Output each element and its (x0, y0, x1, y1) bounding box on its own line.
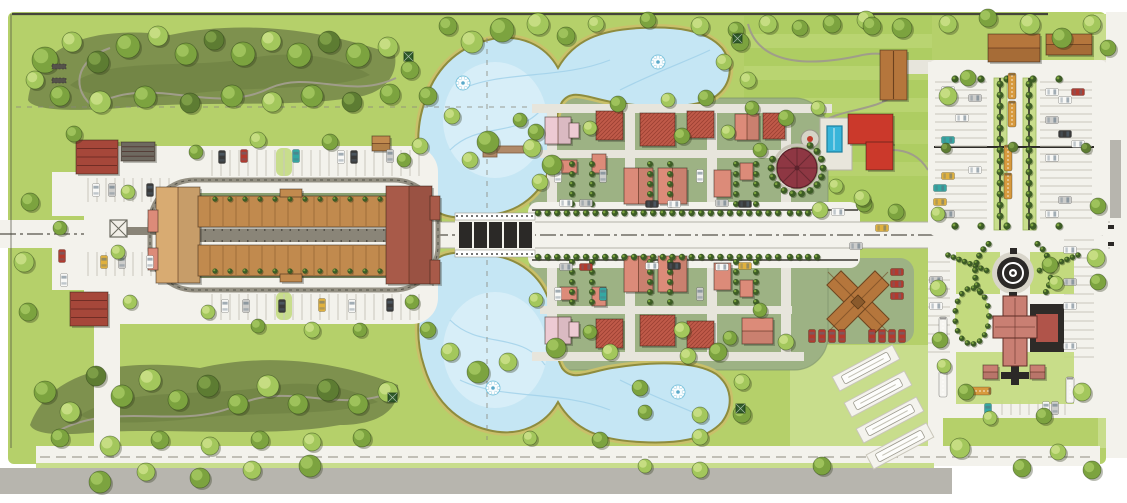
street-tree-highlight (348, 269, 350, 271)
street-tree-highlight (574, 211, 577, 214)
street-tree-highlight (815, 149, 818, 152)
street-tree-highlight (998, 104, 1001, 107)
car-windshield (985, 406, 990, 409)
street-tree-highlight (728, 255, 731, 258)
street-tree-canopy (554, 210, 560, 216)
street-tree-highlight (1027, 203, 1030, 206)
car-windshield (879, 332, 884, 335)
street-tree-canopy (769, 173, 776, 180)
street-tree-canopy (733, 191, 739, 197)
street-tree-canopy (272, 268, 277, 273)
street-tree-canopy (753, 191, 759, 197)
street-tree-highlight (668, 270, 670, 272)
street-tree-canopy (775, 254, 781, 260)
street-tree-highlight (815, 182, 818, 185)
street-tree-canopy (679, 254, 685, 260)
tree-highlight (354, 324, 362, 332)
street-tree-highlight (689, 255, 692, 258)
village-pink-n-annex-roof (569, 123, 579, 138)
fountain-droplet (489, 382, 492, 385)
car-rear-window (717, 264, 719, 269)
car (1046, 89, 1059, 96)
car-rear-window (740, 263, 742, 268)
street-tree-highlight (953, 319, 955, 321)
tree-highlight (290, 396, 301, 407)
lodge-east-wing-shade (409, 186, 432, 284)
street-tree-canopy (257, 268, 262, 273)
car-rear-window (101, 264, 106, 266)
street-tree-highlight (766, 211, 769, 214)
street-tree-highlight (747, 255, 750, 258)
tree-highlight (961, 71, 970, 80)
street-tree-canopy (978, 265, 984, 271)
car-rear-window (892, 269, 894, 274)
street-tree-canopy (733, 259, 739, 265)
lodge-bump-n (280, 189, 302, 197)
street-tree-highlight (1027, 214, 1030, 217)
street-tree-highlight (754, 300, 756, 302)
car-rear-window (839, 338, 844, 340)
street-tree-highlight (661, 211, 664, 214)
street-tree-canopy (569, 299, 575, 305)
car (942, 137, 955, 144)
car-windshield (387, 301, 392, 304)
car-rear-window (829, 338, 834, 340)
car-windshield (600, 172, 605, 175)
car-windshield (243, 302, 248, 305)
rec-center-a (848, 114, 893, 144)
street-tree-highlight (288, 269, 290, 271)
village-red-s2-hatch (640, 315, 675, 346)
street-tree-canopy (544, 254, 550, 260)
car (1072, 89, 1085, 96)
street-tree-highlight (734, 192, 736, 194)
tree-highlight (1050, 277, 1058, 285)
street-tree-highlight (734, 270, 736, 272)
bus-cab (1009, 102, 1015, 104)
street-tree-highlight (613, 211, 616, 214)
street-tree-highlight (590, 300, 592, 302)
car (819, 330, 826, 343)
street-tree-canopy (647, 171, 653, 177)
tree-highlight (16, 254, 27, 265)
street-tree-canopy (997, 125, 1004, 132)
fountain-droplet (494, 382, 497, 385)
tree-highlight (584, 122, 592, 130)
street-tree-highlight (593, 211, 596, 214)
fountain-droplet (674, 395, 677, 398)
street-tree-canopy (971, 285, 977, 291)
street-tree-highlight (363, 269, 365, 271)
village-salmon-n-shade (747, 114, 759, 140)
street-tree-canopy (602, 254, 608, 260)
car (560, 264, 573, 271)
street-tree-canopy (796, 210, 802, 216)
tree-highlight (89, 53, 101, 65)
car-windshield (349, 302, 354, 305)
car-rear-window (1065, 343, 1067, 348)
street-tree-highlight (1060, 260, 1062, 262)
street-tree-canopy (667, 279, 673, 285)
street-tree-highlight (1030, 223, 1033, 226)
carousel-center (795, 166, 800, 171)
car-rear-window (147, 192, 152, 194)
inn-s2-shade (673, 256, 688, 292)
street-tree-highlight (243, 197, 245, 199)
tree-highlight (1084, 16, 1094, 26)
tree-highlight (88, 368, 99, 379)
street-tree-highlight (788, 255, 791, 258)
street-tree-highlight (303, 269, 305, 271)
street-tree-canopy (1059, 259, 1065, 265)
fountain-droplet (456, 82, 459, 85)
street-tree-highlight (622, 211, 625, 214)
tree-highlight (1014, 460, 1024, 470)
car (147, 184, 154, 197)
tree-highlight (199, 377, 211, 389)
street-tree-canopy (1026, 180, 1033, 187)
street-tree-highlight (648, 172, 650, 174)
car-windshield (898, 269, 901, 274)
street-tree-highlight (709, 211, 712, 214)
chapel-a-shade (983, 372, 998, 379)
street-tree-canopy (1026, 202, 1033, 209)
fountain-droplet (651, 61, 654, 64)
tree-highlight (1084, 462, 1094, 472)
street-tree-canopy (997, 147, 1004, 154)
street-tree-highlight (590, 280, 592, 282)
car-rear-window (600, 296, 605, 298)
street-tree-highlight (998, 82, 1001, 85)
car-rear-window (387, 158, 392, 160)
street-tree-canopy (753, 201, 759, 207)
street-tree-highlight (974, 261, 976, 263)
street-tree-canopy (1040, 246, 1046, 252)
street-tree-highlight (570, 290, 572, 292)
hall-ne-1 (988, 34, 1040, 62)
street-tree-canopy (787, 254, 793, 260)
street-tree-canopy (952, 318, 958, 324)
street-tree-canopy (569, 191, 575, 197)
village-red-s1-hatch (596, 319, 623, 348)
car (697, 288, 704, 301)
lodge-bump-s (280, 274, 302, 282)
street-tree-highlight (806, 255, 809, 258)
car (580, 200, 593, 207)
car (59, 250, 66, 263)
street-tree-canopy (951, 254, 957, 260)
street-tree-canopy (564, 254, 570, 260)
tree-highlight (27, 72, 37, 82)
street-tree-highlight (661, 255, 664, 258)
street-tree-highlight (709, 255, 712, 258)
car-windshield (1066, 97, 1069, 102)
street-tree-highlight (734, 280, 736, 282)
street-tree-highlight (680, 211, 683, 214)
bus-cab (989, 388, 991, 394)
barn-sw (70, 292, 108, 326)
car-rear-window (219, 159, 224, 161)
tree-highlight (398, 154, 406, 162)
car (1059, 97, 1072, 104)
street-tree-highlight (243, 269, 245, 271)
tree-highlight (544, 157, 555, 168)
tree-highlight (931, 281, 940, 290)
street-tree-highlight (590, 162, 592, 164)
street-tree-highlight (555, 211, 558, 214)
street-tree-highlight (651, 211, 654, 214)
car-rear-window (669, 201, 671, 206)
fountain-droplet (467, 82, 470, 85)
car-windshield (899, 332, 904, 335)
tree-highlight (813, 203, 822, 212)
fountain-droplet (671, 391, 674, 394)
street-tree-highlight (668, 280, 670, 282)
street-tree-canopy (1026, 191, 1033, 198)
tree-highlight (533, 175, 542, 184)
tree-highlight (558, 28, 568, 38)
utility-pad (404, 52, 413, 61)
tree-highlight (779, 335, 788, 344)
street-tree-canopy (631, 210, 637, 216)
car-windshield (949, 137, 952, 142)
street-tree-highlight (590, 290, 592, 292)
car-rear-window (1047, 89, 1049, 94)
tree-highlight (1091, 275, 1100, 284)
street-tree-highlight (757, 255, 760, 258)
street-tree-canopy (1026, 158, 1033, 165)
chapel-a (983, 365, 998, 379)
shop-n4-roof (740, 163, 753, 180)
street-tree-highlight (808, 143, 811, 146)
car-windshield (600, 290, 605, 293)
tree-highlight (524, 140, 534, 150)
street-tree-highlight (985, 268, 987, 270)
street-tree-highlight (718, 255, 721, 258)
village-red-n1-hatch (596, 111, 623, 140)
street-tree-highlight (574, 255, 577, 258)
street-tree-highlight (699, 255, 702, 258)
tree-highlight (141, 371, 153, 383)
street-tree-canopy (602, 210, 608, 216)
fountain-droplet (494, 391, 497, 394)
lodge-bump-n-roof (280, 189, 302, 197)
street-tree-canopy (569, 161, 575, 167)
street-tree-canopy (977, 288, 983, 294)
village-pink-s-annex-roof (569, 322, 579, 337)
tree-highlight (1043, 258, 1052, 267)
tree-highlight (344, 94, 355, 105)
street-tree-highlight (651, 255, 654, 258)
street-tree-canopy (997, 81, 1004, 88)
street-tree-canopy (997, 202, 1004, 209)
street-tree-highlight (987, 314, 989, 316)
street-tree-canopy (814, 181, 821, 188)
street-tree-canopy (569, 289, 575, 295)
tree-highlight (710, 344, 720, 354)
street-tree-canopy (592, 254, 598, 260)
car (876, 225, 889, 232)
tree-highlight (760, 16, 770, 26)
street-tree-highlight (641, 211, 644, 214)
street-tree-highlight (960, 336, 962, 338)
car (560, 200, 573, 207)
fountain (456, 76, 470, 90)
tree-highlight (633, 381, 642, 390)
street-tree-highlight (978, 289, 980, 291)
street-tree-highlight (799, 191, 802, 194)
street-tree-canopy (569, 279, 575, 285)
street-tree-highlight (1027, 181, 1030, 184)
street-tree-canopy (951, 75, 958, 82)
street-tree-highlight (754, 260, 756, 262)
car (241, 150, 248, 163)
tree-highlight (779, 111, 788, 120)
street-tree-highlight (648, 162, 650, 164)
car (147, 256, 154, 269)
car-rear-window (1065, 279, 1067, 284)
car-rear-window (61, 282, 66, 284)
lodge-bump-s-roof (280, 274, 302, 282)
bus-cab (940, 318, 946, 320)
car-rear-window (879, 338, 884, 340)
street-tree-highlight (228, 197, 230, 199)
street-tree-canopy (621, 254, 627, 260)
street-tree-highlight (986, 242, 988, 244)
tree-highlight (52, 430, 62, 440)
car-rear-window (1047, 117, 1049, 122)
tree-highlight (304, 434, 314, 444)
street-tree-canopy (997, 114, 1004, 121)
tree-highlight (492, 20, 505, 33)
car-windshield (351, 153, 356, 156)
street-tree-highlight (754, 290, 756, 292)
street-tree-highlight (1035, 242, 1037, 244)
street-tree-canopy (332, 268, 337, 273)
car-rear-window (109, 192, 114, 194)
tree-highlight (303, 87, 315, 99)
car (668, 263, 681, 270)
car-windshield (219, 153, 224, 156)
school-bus (1008, 101, 1016, 127)
utility-pad (388, 393, 397, 402)
street-tree-highlight (734, 172, 736, 174)
street-tree-canopy (667, 161, 673, 167)
street-tree-highlight (213, 269, 215, 271)
lodge-west-wing (156, 187, 200, 283)
car-windshield (889, 332, 894, 335)
street-tree-highlight (1027, 126, 1030, 129)
street-tree-canopy (667, 269, 673, 275)
village-salmon-n (735, 114, 759, 140)
village-salmon-s-shade (742, 331, 773, 344)
tree-highlight (830, 180, 838, 188)
street-tree-canopy (796, 254, 802, 260)
tree-highlight (406, 296, 414, 304)
street-tree-highlight (668, 192, 670, 194)
fountain-droplet (654, 65, 657, 68)
street-tree-canopy (972, 267, 978, 273)
street-tree-canopy (688, 210, 694, 216)
tree-highlight (319, 381, 331, 393)
street-tree-canopy (667, 181, 673, 187)
street-tree-highlight (734, 300, 736, 302)
street-tree-canopy (1026, 114, 1033, 121)
tree-highlight (348, 45, 361, 58)
street-tree-highlight (737, 255, 740, 258)
street-tree-canopy (997, 191, 1004, 198)
street-tree-canopy (951, 222, 958, 229)
street-tree-canopy (1037, 268, 1043, 274)
bus-cab (1067, 378, 1073, 380)
street-tree-canopy (667, 289, 673, 295)
car-rear-window (1047, 211, 1049, 216)
car (930, 303, 943, 310)
tree-highlight (699, 91, 708, 100)
tree-highlight (252, 320, 260, 328)
street-tree-canopy (814, 254, 820, 260)
car-windshield (675, 201, 678, 206)
street-tree-canopy (287, 268, 292, 273)
car-windshield (941, 199, 944, 204)
street-tree-highlight (668, 290, 670, 292)
chapel-b-shade (1030, 372, 1045, 379)
street-tree-highlight (821, 166, 824, 169)
car-rear-window (581, 264, 583, 269)
car-windshield (109, 186, 114, 189)
village-red-n3 (687, 111, 714, 138)
car-rear-window (943, 173, 945, 178)
street-tree-canopy (589, 181, 595, 187)
tree-highlight (812, 102, 820, 110)
street-tree-highlight (963, 260, 965, 262)
street-tree-canopy (589, 171, 595, 177)
street-tree-canopy (787, 210, 793, 216)
street-tree-highlight (648, 290, 650, 292)
street-tree-highlight (680, 255, 683, 258)
tree-highlight (717, 55, 726, 64)
labyrinth-dot (1011, 271, 1015, 275)
street-tree-canopy (708, 210, 714, 216)
street-tree-highlight (303, 197, 305, 199)
street-tree-highlight (545, 255, 548, 258)
lodge-east-tip-s (430, 260, 440, 284)
shop-s4-roof (740, 280, 753, 297)
tree-highlight (136, 88, 148, 100)
street-tree-highlight (1027, 115, 1030, 118)
tree-highlight (514, 114, 522, 122)
street-tree-highlight (754, 172, 756, 174)
street-tree-highlight (641, 255, 644, 258)
street-tree-highlight (815, 255, 818, 258)
street-tree-canopy (986, 313, 992, 319)
car (1046, 155, 1059, 162)
tree-highlight (735, 375, 744, 384)
village-pink-n-annex (569, 123, 579, 138)
street-tree-canopy (997, 180, 1004, 187)
tree-highlight (118, 36, 131, 49)
street-tree-canopy (1026, 92, 1033, 99)
church-hall-core (1036, 314, 1058, 342)
street-tree-canopy (733, 161, 739, 167)
car-windshield (976, 95, 979, 100)
street-tree-canopy (985, 303, 991, 309)
car-rear-window (1073, 141, 1075, 146)
car (1064, 247, 1077, 254)
street-tree-canopy (733, 201, 739, 207)
street-tree-highlight (998, 148, 1001, 151)
car-windshield (1079, 89, 1082, 94)
